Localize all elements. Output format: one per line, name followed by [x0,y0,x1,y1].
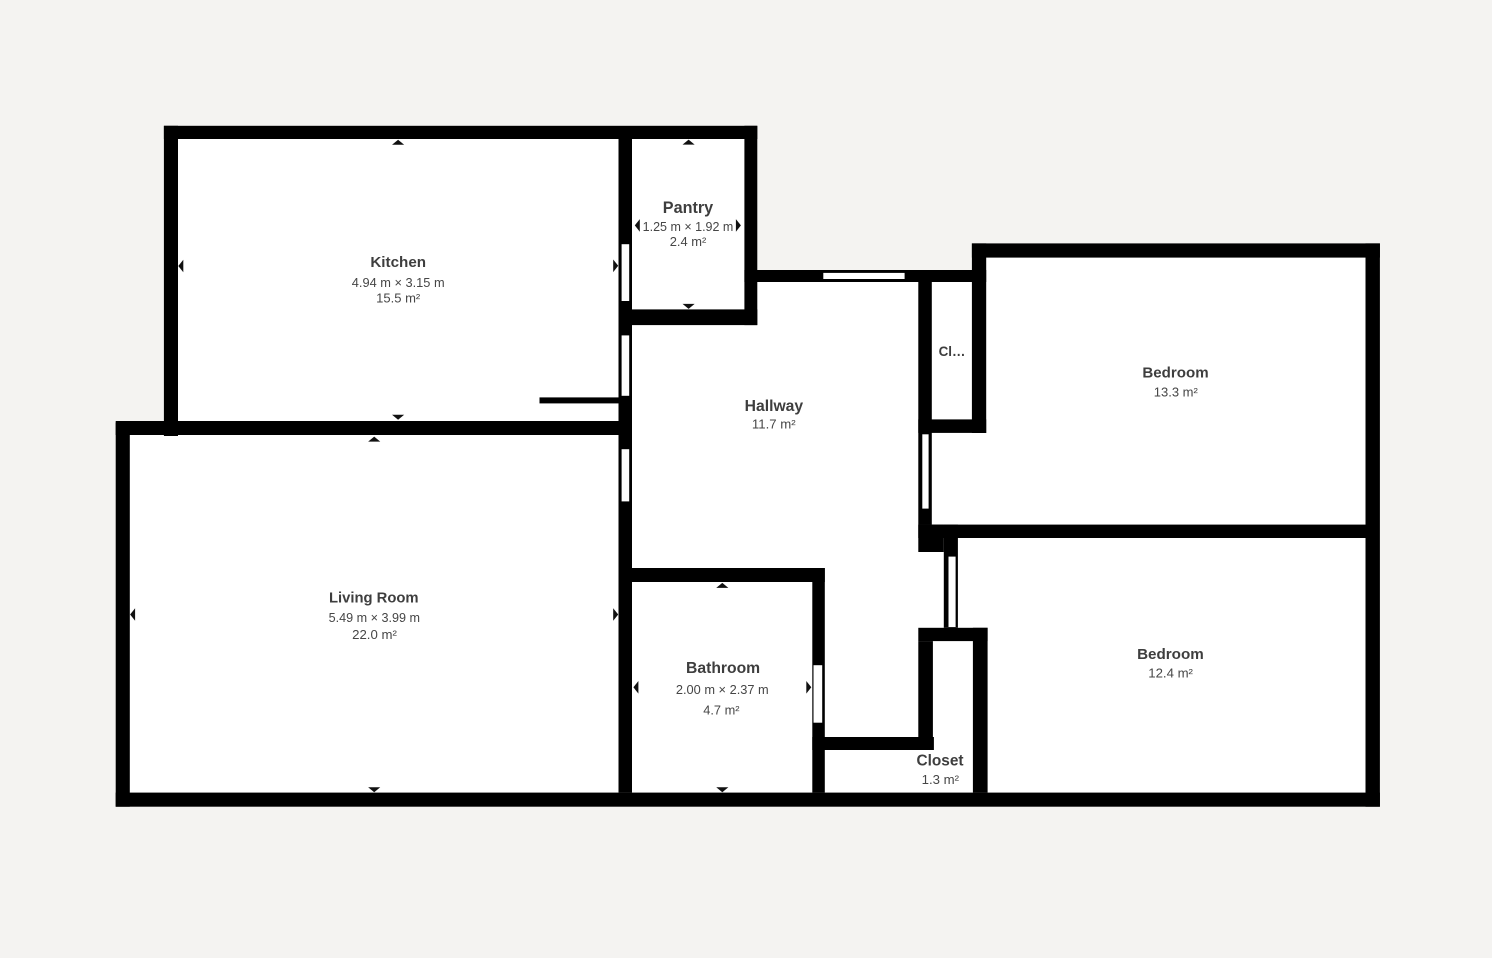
svg-text:Bedroom: Bedroom [1142,364,1208,381]
svg-text:2.4 m²: 2.4 m² [670,234,707,249]
svg-text:22.0 m²: 22.0 m² [352,627,397,642]
svg-text:Bedroom: Bedroom [1137,646,1204,663]
svg-text:15.5 m²: 15.5 m² [376,291,421,306]
svg-text:Living Room: Living Room [329,590,419,606]
svg-text:4.94 m × 3.15 m: 4.94 m × 3.15 m [352,275,445,290]
svg-text:2.00 m × 2.37 m: 2.00 m × 2.37 m [676,682,769,697]
svg-text:5.49 m × 3.99 m: 5.49 m × 3.99 m [329,611,420,625]
svg-text:Hallway: Hallway [745,398,804,415]
svg-text:12.4 m²: 12.4 m² [1148,666,1193,681]
svg-text:11.7 m²: 11.7 m² [752,417,796,432]
svg-text:Closet: Closet [916,752,963,769]
svg-text:Cl…: Cl… [939,344,966,359]
svg-text:1.3 m²: 1.3 m² [922,772,960,787]
svg-text:4.7 m²: 4.7 m² [703,703,740,718]
svg-text:13.3 m²: 13.3 m² [1154,385,1199,400]
svg-text:Kitchen: Kitchen [370,254,426,271]
svg-text:Bathroom: Bathroom [686,660,760,677]
svg-text:Pantry: Pantry [663,199,713,217]
svg-text:1.25 m × 1.92 m: 1.25 m × 1.92 m [643,220,734,234]
